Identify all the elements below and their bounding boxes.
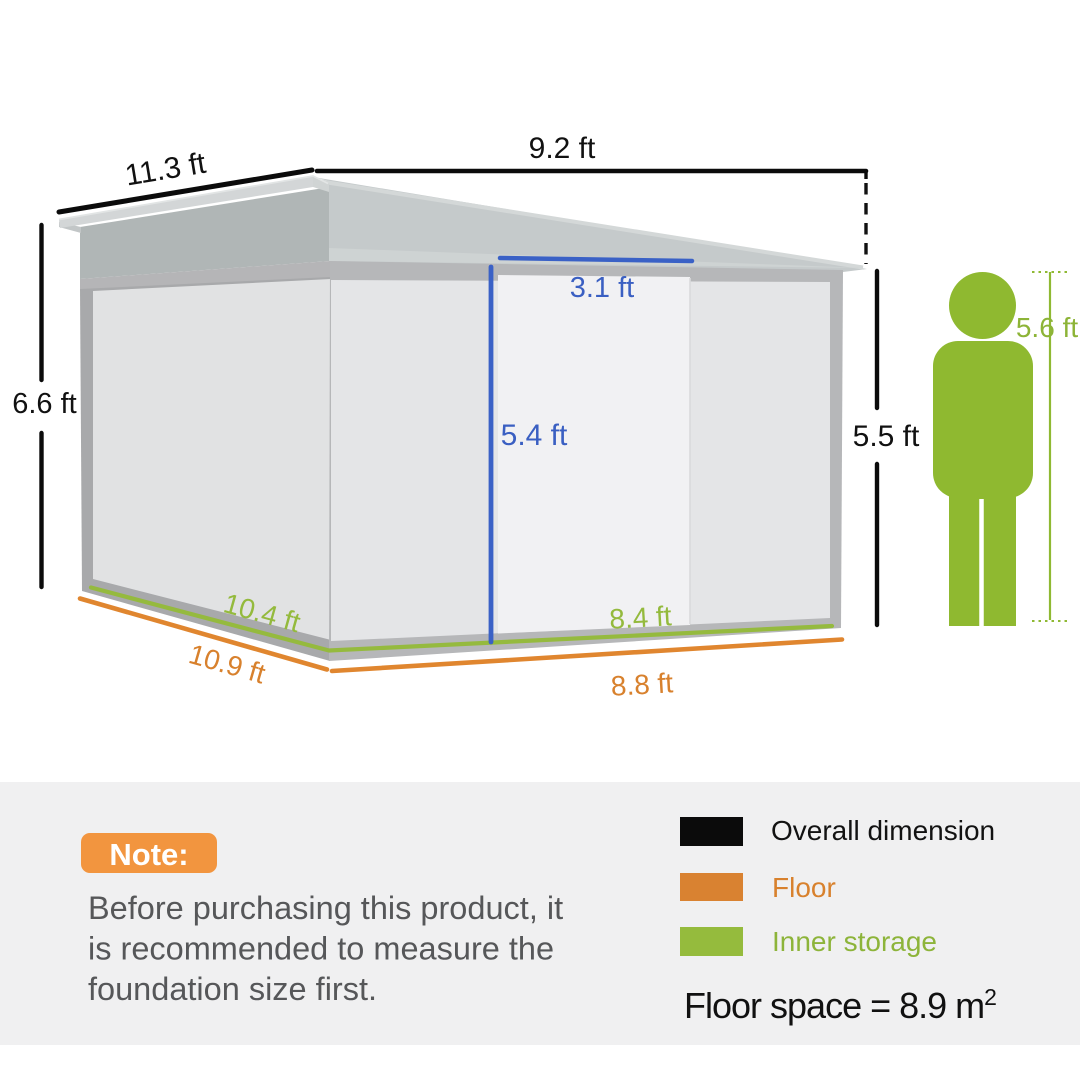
svg-text:5.4 ft: 5.4 ft	[501, 419, 568, 452]
svg-text:10.9 ft: 10.9 ft	[185, 638, 269, 689]
svg-text:Floor space = 8.9 m2: Floor space = 8.9 m2	[684, 984, 996, 1026]
svg-text:6.6 ft: 6.6 ft	[12, 388, 77, 420]
svg-text:8.4 ft: 8.4 ft	[608, 600, 672, 635]
svg-text:5.5 ft: 5.5 ft	[853, 420, 920, 453]
svg-text:Note:: Note:	[109, 837, 188, 872]
svg-text:9.2 ft: 9.2 ft	[529, 132, 596, 165]
svg-text:Inner storage: Inner storage	[772, 926, 937, 957]
svg-text:Overall dimension: Overall dimension	[771, 815, 995, 846]
svg-text:11.3 ft: 11.3 ft	[123, 147, 209, 193]
svg-text:5.6 ft: 5.6 ft	[1016, 312, 1078, 343]
svg-text:is recommended to measure the: is recommended to measure the	[88, 931, 554, 967]
svg-text:3.1 ft: 3.1 ft	[570, 272, 635, 304]
svg-text:Before purchasing this product: Before purchasing this product, it	[88, 890, 563, 926]
svg-text:Floor: Floor	[772, 872, 836, 903]
svg-text:8.8 ft: 8.8 ft	[610, 667, 674, 702]
svg-text:foundation size first.: foundation size first.	[88, 971, 377, 1007]
